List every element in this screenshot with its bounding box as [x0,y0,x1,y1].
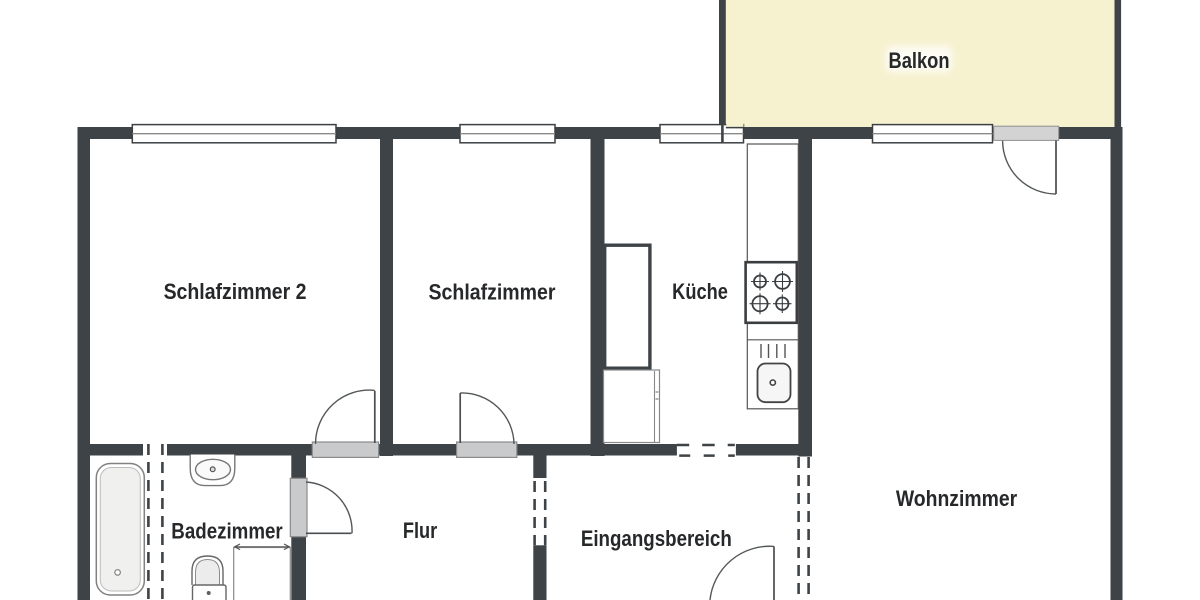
svg-text:Wohnzimmer: Wohnzimmer [896,487,1017,511]
svg-text:Balkon: Balkon [889,49,950,73]
svg-text:Eingangsbereich: Eingangsbereich [581,527,732,551]
svg-text:Schlafzimmer 2: Schlafzimmer 2 [164,280,307,304]
svg-text:Flur: Flur [403,519,437,543]
svg-text:Schlafzimmer: Schlafzimmer [429,280,556,304]
svg-text:Küche: Küche [672,280,728,304]
svg-text:Badezimmer: Badezimmer [171,520,282,544]
